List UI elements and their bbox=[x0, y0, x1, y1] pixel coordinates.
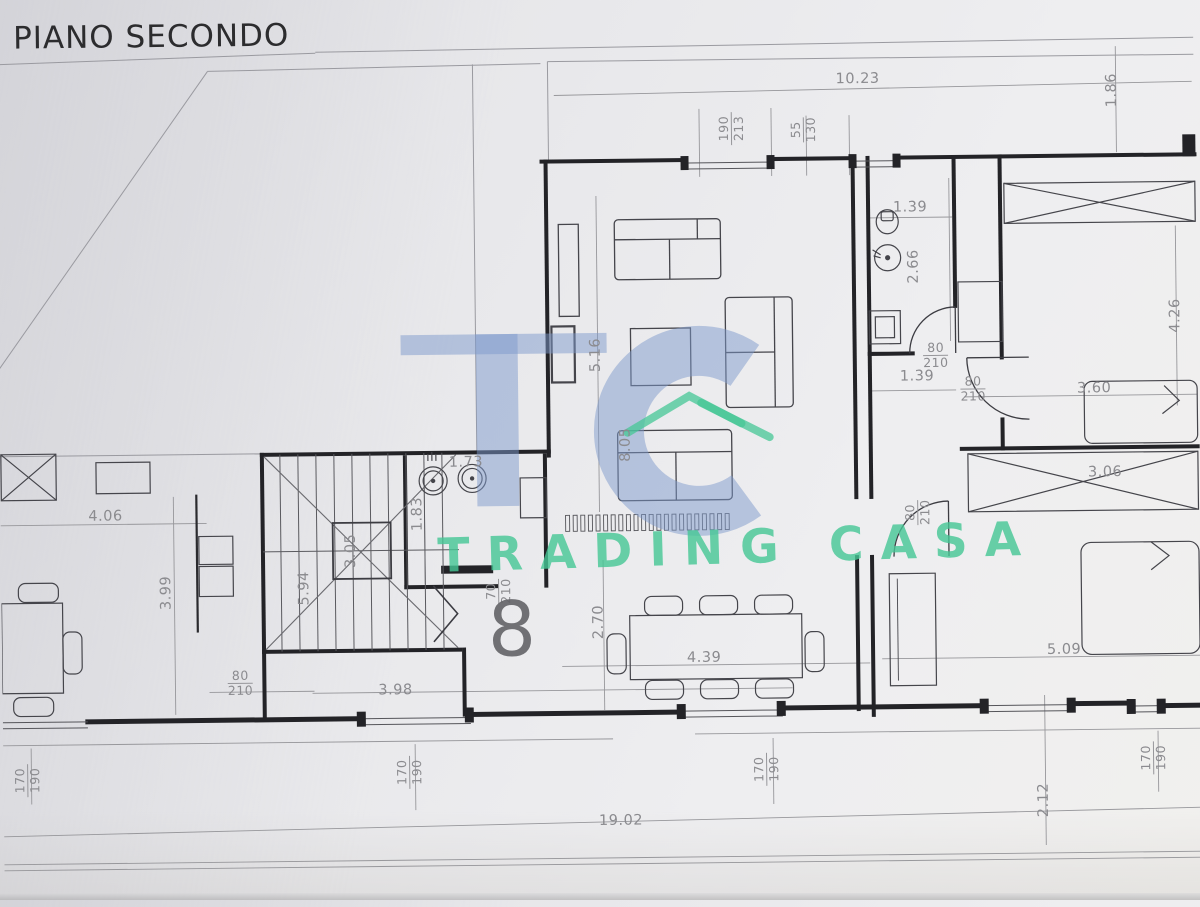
opening-height: 190 bbox=[410, 759, 424, 785]
dimension-label: 4.06 bbox=[88, 508, 122, 524]
floorplan-sheet: TRADING CASA 10.231.861.392.664.263.603.… bbox=[0, 0, 1200, 907]
opening-height: 190 bbox=[28, 768, 42, 794]
opening-height: 213 bbox=[732, 116, 746, 142]
dimension-label: 2.12 bbox=[1036, 783, 1052, 817]
opening-width: 170 bbox=[752, 752, 767, 786]
dimension-label: 3.99 bbox=[158, 576, 174, 610]
dimension-label: 1.39 bbox=[900, 368, 934, 384]
dimension-label: 3.06 bbox=[1088, 464, 1122, 480]
opening-size-label: 80210 bbox=[923, 341, 949, 370]
dimension-label: 4.26 bbox=[1167, 298, 1183, 332]
opening-height: 210 bbox=[228, 683, 254, 697]
apartment-number: 8 bbox=[487, 584, 536, 674]
opening-width: 80 bbox=[903, 500, 918, 525]
opening-width: 170 bbox=[1139, 741, 1154, 775]
opening-width: 190 bbox=[717, 112, 732, 146]
dimension-label: 1.86 bbox=[1104, 73, 1120, 107]
opening-height: 210 bbox=[923, 356, 949, 370]
dimension-label: 5.94 bbox=[296, 571, 312, 605]
opening-width: 55 bbox=[789, 117, 804, 142]
opening-size-label: 80210 bbox=[960, 374, 986, 403]
dimension-label: 19.02 bbox=[599, 813, 643, 829]
opening-size-label: 170190 bbox=[13, 764, 42, 798]
page-title: PIANO SECONDO bbox=[13, 17, 290, 56]
opening-height: 210 bbox=[960, 389, 986, 403]
opening-size-label: 190213 bbox=[717, 112, 746, 146]
dimension-labels-layer: 10.231.861.392.664.263.603.061.395.168.0… bbox=[0, 0, 1200, 907]
dimension-label: 1.83 bbox=[409, 497, 425, 531]
dimension-label: 1.39 bbox=[893, 199, 927, 215]
opening-height: 190 bbox=[1154, 745, 1168, 771]
dimension-label: 3.98 bbox=[378, 682, 412, 698]
dimension-label: 2.70 bbox=[591, 605, 607, 639]
dimension-label: 4.39 bbox=[687, 650, 721, 666]
opening-size-label: 170190 bbox=[752, 752, 781, 786]
opening-height: 130 bbox=[804, 117, 818, 143]
dimension-label: 5.09 bbox=[1047, 642, 1081, 658]
dimension-label: 10.23 bbox=[836, 71, 880, 87]
opening-width: 170 bbox=[395, 755, 410, 789]
dimension-label: 3.05 bbox=[343, 534, 359, 568]
opening-size-label: 55130 bbox=[789, 117, 818, 143]
opening-width: 170 bbox=[13, 764, 28, 798]
opening-width: 80 bbox=[923, 341, 948, 356]
floorplan-photo: { "title": "PIANO SECONDO", "unit_number… bbox=[0, 0, 1200, 900]
opening-size-label: 170190 bbox=[1139, 741, 1168, 775]
opening-size-label: 170190 bbox=[395, 755, 424, 789]
opening-size-label: 80210 bbox=[903, 500, 932, 526]
dimension-label: 2.66 bbox=[906, 249, 922, 283]
dimension-label: 8.05 bbox=[618, 427, 634, 461]
dimension-label: 3.60 bbox=[1077, 380, 1111, 396]
dimension-label: 1.73 bbox=[449, 454, 483, 470]
opening-width: 80 bbox=[228, 669, 253, 684]
opening-size-label: 80210 bbox=[228, 669, 254, 698]
opening-height: 190 bbox=[767, 756, 781, 782]
opening-width: 80 bbox=[961, 374, 986, 389]
dimension-label: 5.16 bbox=[588, 338, 604, 372]
opening-height: 210 bbox=[918, 500, 932, 526]
